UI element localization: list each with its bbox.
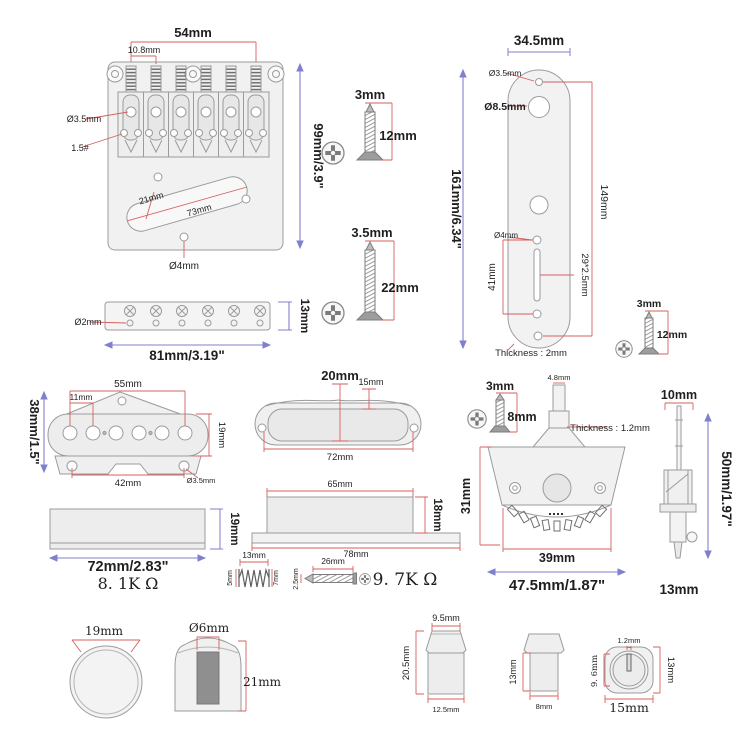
dim-screw-a-l: 12mm: [379, 128, 417, 143]
dim-tip-top-slot: 1.2mm: [618, 636, 641, 645]
label-plate-thickness: Thickness : 2mm: [495, 348, 567, 359]
dim-knob-top-diameter: 19mm: [85, 624, 124, 638]
dim-plate-width: 34.5mm: [514, 33, 564, 48]
knob-top-drawing: [70, 646, 142, 718]
dim-tip-top-inner: 9. 6mm: [590, 655, 600, 687]
dim-tip1-top: 9.5mm: [432, 613, 460, 623]
dim-plate-span: 149mm: [598, 184, 610, 219]
phillips-head-icon: [360, 574, 371, 585]
dim-plate-slot: 29*2.5mm: [579, 253, 590, 296]
dim-plate-length: 161mm/6.34": [449, 169, 464, 249]
phillips-head-icon: [322, 142, 344, 164]
dim-switch-width: 39mm: [539, 551, 575, 565]
tip-top-drawing: [605, 647, 653, 693]
dim-screw-c-d: 3mm: [637, 298, 662, 310]
label-ferrule-hole: Ø2mm: [75, 317, 102, 327]
dim-spring-dr: 7mm: [273, 570, 280, 586]
label-switch-thickness: Thickness : 1.2mm: [570, 423, 650, 434]
dim-switch-side-width: 10mm: [661, 388, 697, 402]
dim-switch-side-depth: 13mm: [659, 582, 698, 597]
dim-ferrule-width: 81mm/3.19": [149, 348, 224, 363]
label-saddle-hole: Ø3.5mm: [67, 114, 102, 124]
label-cl-resistance: 8. 1K Ω: [98, 574, 159, 593]
screw-d-drawing: [305, 573, 357, 584]
dim-ferrule-height: 13mm: [298, 299, 312, 334]
guitar-parts-diagram: 54mm 10.8mm Ø3.5mm 1.5# 99mm/3.9" 21mm 7…: [0, 0, 750, 750]
dim-switch-overall: 47.5mm/1.87": [509, 577, 605, 594]
dim-bp-bobbin: 19mm: [216, 422, 227, 448]
dim-screw-b-d: 3.5mm: [351, 225, 392, 240]
label-plate-pot-hole: Ø8.5mm: [484, 101, 525, 113]
dim-cl-height: 19mm: [228, 512, 240, 545]
dim-tip-top-width: 15mm: [609, 700, 649, 715]
dim-switch-tip: 4.8mm: [548, 373, 571, 382]
dim-tip1-height: 20.5mm: [401, 646, 412, 680]
label-bridge-mount-hole: Ø4mm: [169, 261, 199, 272]
phillips-head-icon: [322, 302, 344, 324]
dim-knob-height: 21mm: [243, 675, 282, 689]
dim-screw-d-l: 26mm: [321, 556, 345, 566]
knob-side-drawing: [175, 638, 241, 711]
dim-bp-height: 38mm/1.5": [27, 399, 42, 464]
dim-cm-top: 65mm: [327, 479, 352, 489]
tip1-drawing: [426, 631, 466, 694]
dim-switch-side-height: 50mm/1.97": [719, 451, 734, 526]
label-plate-hole: Ø4mm: [494, 231, 518, 240]
dim-screw-a-d: 3mm: [355, 87, 385, 102]
dim-bp-mount-span: 42mm: [115, 478, 141, 489]
diagram-canvas: 54mm 10.8mm Ø3.5mm 1.5# 99mm/3.9" 21mm 7…: [0, 0, 750, 750]
dim-bridge-overall: 54mm: [174, 25, 212, 40]
cover-left-drawing: [50, 509, 205, 549]
dim-bp-spacing: 11mm: [70, 392, 93, 402]
dim-np-height: 20mm: [321, 368, 359, 383]
phillips-head-icon: [616, 341, 632, 357]
dim-knob-shaft: Ø6mm: [189, 621, 230, 635]
dim-tip1-base: 12.5mm: [432, 705, 459, 714]
dim-np-width: 72mm: [327, 452, 353, 463]
bridge-plate-drawing: [107, 62, 284, 250]
dim-switch-height: 31mm: [459, 478, 473, 514]
neck-pickup-drawing: [255, 400, 421, 445]
dim-screw-b-l: 22mm: [381, 280, 419, 295]
label-plate-small-hole: Ø3.5mm: [489, 68, 522, 78]
dim-screw-c-l: 12mm: [657, 329, 687, 341]
label-cm-resistance: 9. 7K Ω: [373, 570, 438, 590]
label-bp-mount-hole: Ø3.5mm: [187, 476, 216, 485]
dim-switch-screw-l: 8mm: [507, 410, 536, 424]
dim-spring-len: 13mm: [242, 550, 266, 560]
tip2-drawing: [524, 634, 564, 691]
dim-screw-d-d: 2.5mm: [293, 568, 300, 590]
phillips-head-icon: [468, 410, 486, 428]
dim-cm-height: 18mm: [431, 498, 443, 531]
ferrule-block-drawing: [105, 302, 270, 330]
dim-plate-slot-span: 41mm: [487, 263, 498, 291]
dim-cm-base: 78mm: [343, 549, 368, 559]
dim-bridge-spacing: 10.8mm: [128, 45, 161, 55]
dim-spring-dl: 5mm: [227, 570, 234, 586]
dim-tip2-height: 13mm: [508, 659, 518, 684]
dim-switch-screw-d: 3mm: [486, 379, 514, 393]
dim-tip-top-height: 13mm: [665, 657, 676, 683]
label-saddle-screw: 1.5#: [71, 143, 89, 153]
dim-cl-width: 72mm/2.83": [87, 559, 168, 575]
dim-np-cover: 15mm: [358, 377, 383, 387]
dim-bp-width: 55mm: [114, 379, 142, 390]
dim-tip2-base: 8mm: [536, 702, 553, 711]
